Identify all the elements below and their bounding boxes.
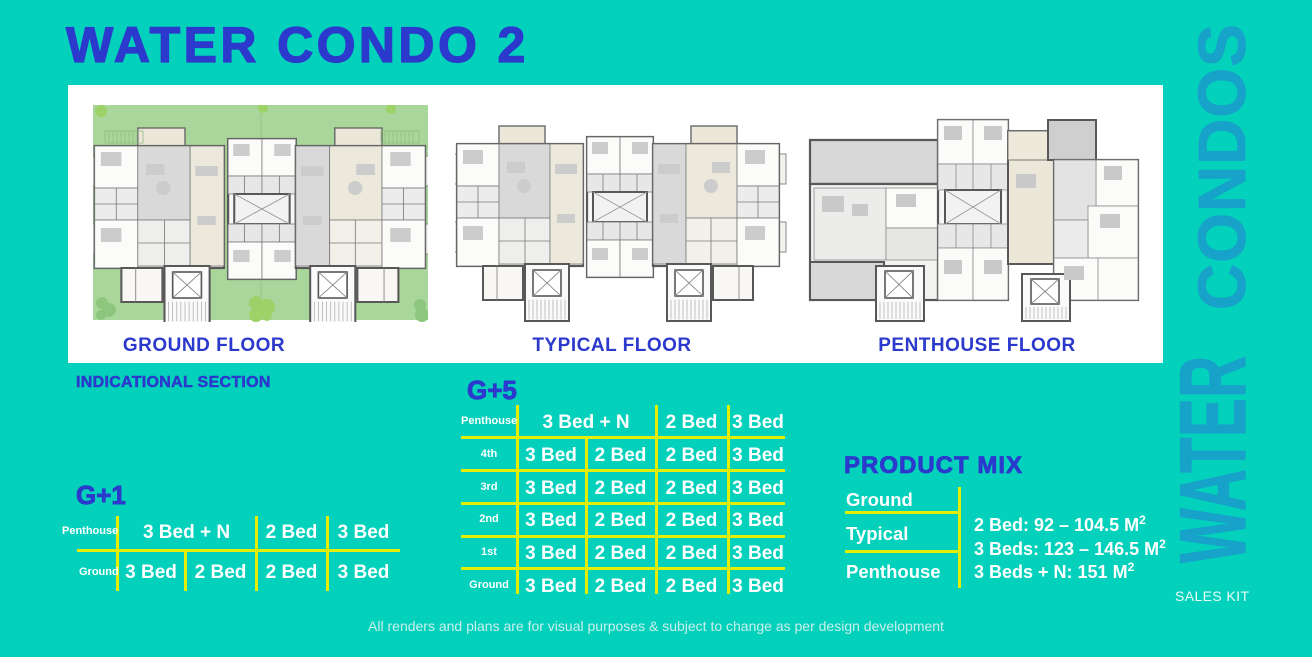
svg-text:WATER: WATER — [1170, 355, 1265, 563]
svg-text:CONDOS: CONDOS — [1185, 23, 1260, 310]
